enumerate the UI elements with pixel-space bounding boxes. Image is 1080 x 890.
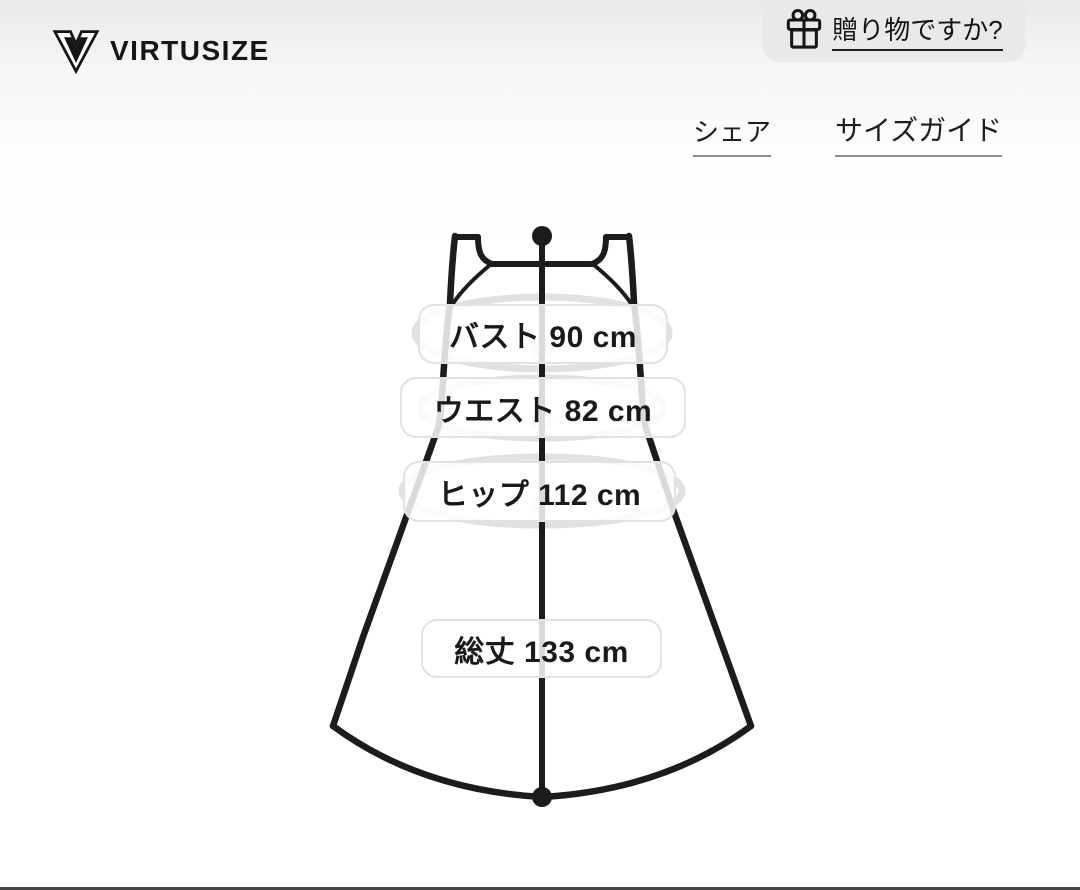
dress-hem: [333, 726, 751, 797]
neckline: [478, 237, 606, 264]
gift-button-label: 贈り物ですか?: [832, 14, 1002, 52]
measurement-total-length: 総丈 133 cm: [421, 619, 662, 678]
length-top-dot: [532, 226, 552, 246]
measurement-hip: ヒップ 112 cm: [403, 461, 676, 522]
measurement-waist: ウエスト 82 cm: [400, 377, 686, 438]
brand-logo: VIRTUSIZE: [52, 28, 270, 74]
brand-name: VIRTUSIZE: [110, 35, 270, 67]
share-link[interactable]: シェア: [693, 112, 771, 157]
length-bottom-dot: [532, 787, 552, 807]
right-armhole: [594, 265, 632, 305]
measurement-bust: バスト 90 cm: [418, 304, 668, 364]
virtusize-widget: VIRTUSIZE 贈り物ですか? シェア サイズガイド: [0, 0, 1080, 890]
gift-button[interactable]: 贈り物ですか?: [762, 0, 1026, 62]
size-guide-link[interactable]: サイズガイド: [835, 109, 1002, 157]
gift-icon: [785, 7, 823, 51]
virtusize-v-icon: [52, 28, 100, 74]
left-armhole: [452, 265, 490, 305]
